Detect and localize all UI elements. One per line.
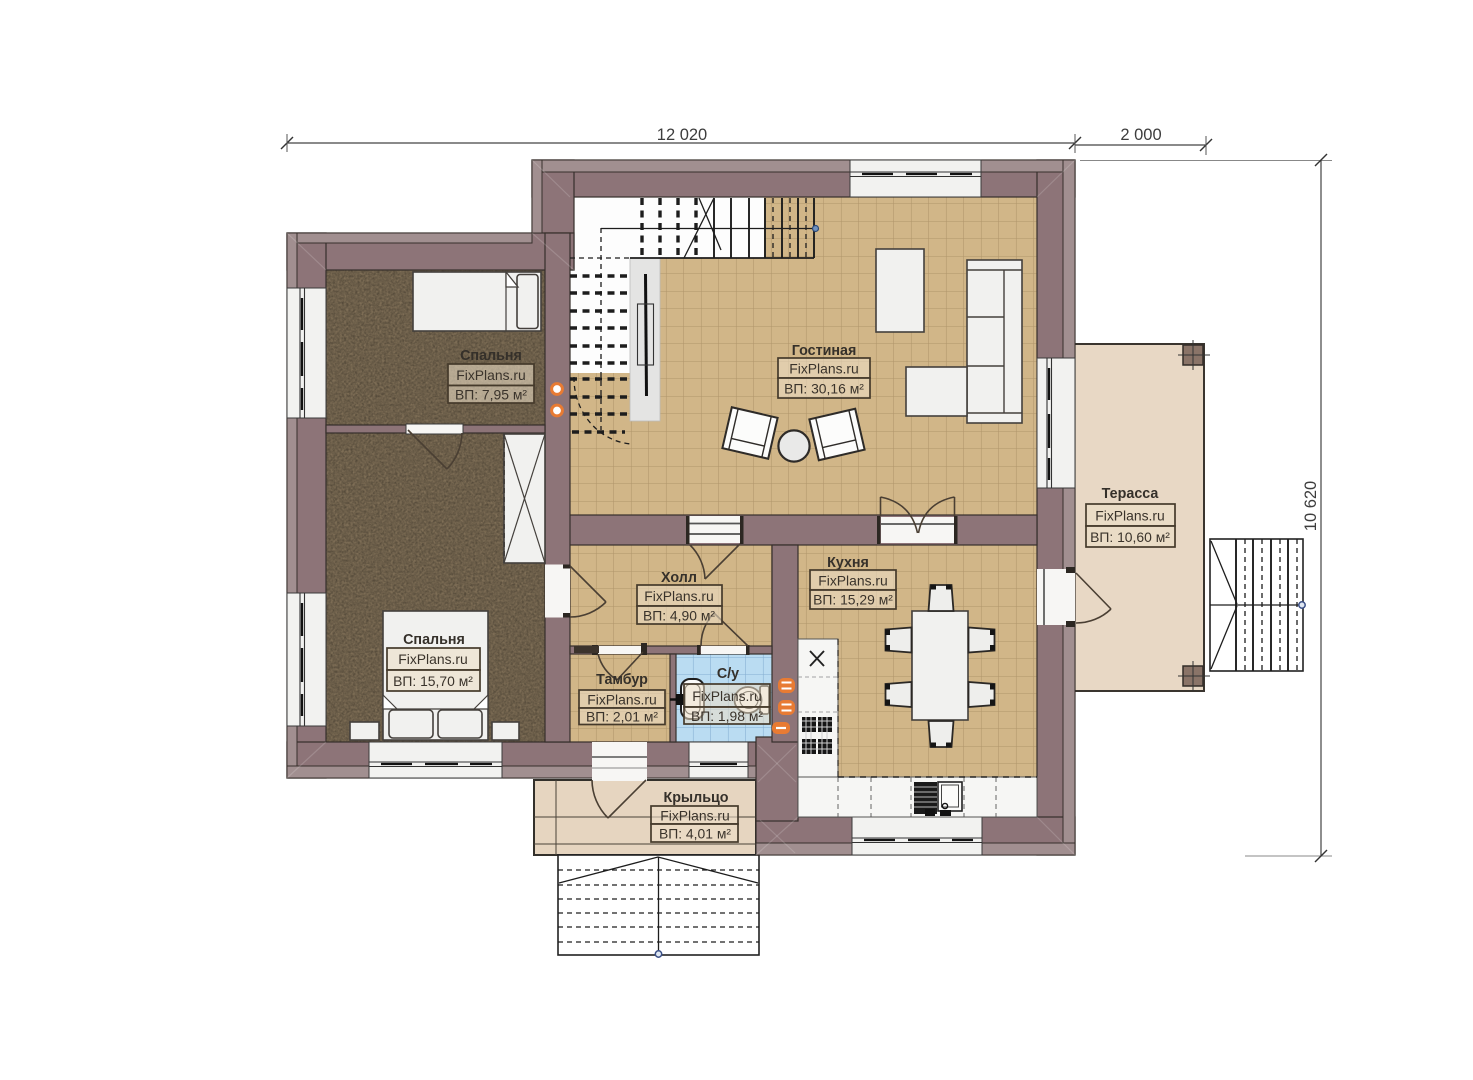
svg-text:Спальня: Спальня [403,632,465,648]
svg-text:Холл: Холл [661,570,697,586]
svg-text:FixPlans.ru: FixPlans.ru [692,688,761,704]
svg-text:Спальня: Спальня [460,348,522,364]
svg-text:ВП: 4,01 м²: ВП: 4,01 м² [659,826,731,842]
svg-text:Тамбур: Тамбур [596,672,648,688]
svg-text:Крыльцо: Крыльцо [663,790,728,806]
svg-text:Кухня: Кухня [827,555,869,571]
svg-text:FixPlans.ru: FixPlans.ru [789,361,858,377]
svg-text:Терасса: Терасса [1102,486,1160,502]
svg-text:FixPlans.ru: FixPlans.ru [1095,508,1164,524]
svg-text:FixPlans.ru: FixPlans.ru [644,588,713,604]
svg-text:ВП: 7,95 м²: ВП: 7,95 м² [455,387,527,403]
svg-text:FixPlans.ru: FixPlans.ru [660,808,729,824]
svg-text:ВП: 30,16 м²: ВП: 30,16 м² [784,381,864,397]
svg-text:FixPlans.ru: FixPlans.ru [818,573,887,589]
svg-text:FixPlans.ru: FixPlans.ru [398,651,467,667]
svg-text:12 020: 12 020 [657,126,707,144]
svg-text:Гостиная: Гостиная [792,343,857,359]
svg-text:ВП: 2,01 м²: ВП: 2,01 м² [586,709,658,725]
svg-text:ВП: 15,29 м²: ВП: 15,29 м² [813,592,893,608]
svg-text:ВП: 1,98 м²: ВП: 1,98 м² [691,708,763,724]
svg-text:2 000: 2 000 [1120,126,1161,144]
svg-text:FixPlans.ru: FixPlans.ru [456,367,525,383]
svg-text:ВП: 4,90 м²: ВП: 4,90 м² [643,608,715,624]
svg-text:FixPlans.ru: FixPlans.ru [587,692,656,708]
svg-text:ВП: 15,70 м²: ВП: 15,70 м² [393,673,473,689]
svg-text:ВП: 10,60 м²: ВП: 10,60 м² [1090,529,1170,545]
svg-text:С/у: С/у [717,666,739,682]
svg-text:10 620: 10 620 [1302,481,1320,531]
